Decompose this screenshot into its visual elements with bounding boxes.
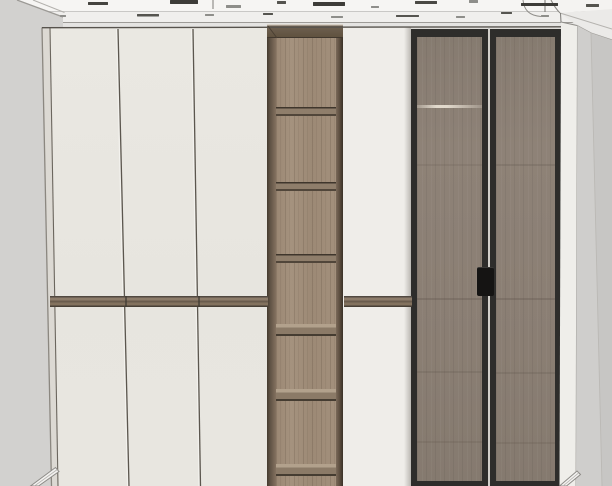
through-glass-shelf-line [496,298,556,300]
through-glass-shelf-line [417,105,482,108]
open-shelf-tower[interactable] [267,24,343,486]
glass-door-right[interactable] [490,28,562,486]
through-glass-shelf-line [417,371,482,373]
wood-shelf [276,464,336,476]
shelf-tower-interior [276,38,336,486]
through-glass-shelf-line [417,441,482,443]
shelf-tower-left-stile [267,38,276,486]
through-glass-shelf-line [417,298,482,300]
wood-shelf [276,254,336,263]
cabinet-right-end-panel[interactable] [560,22,578,486]
cream-door-bank[interactable] [42,28,267,486]
glass-interior-shelf-lines [417,37,482,482]
through-glass-shelf-line [496,442,556,444]
crown-molding-face [0,11,612,22]
right-wall-far [591,33,612,486]
render-viewport[interactable] [0,0,612,486]
wood-shelf [276,389,336,401]
filler-door-edge-shadow [404,27,411,486]
glass-door-handle[interactable] [477,267,495,296]
right-wall-near [576,26,603,486]
through-glass-shelf-line [417,164,482,166]
glass-door-left[interactable] [411,28,488,486]
glass-pane-left [417,37,482,482]
through-glass-shelf-line [496,164,556,166]
wood-shelf [276,324,336,336]
through-glass-shelf-line [496,372,556,374]
wood-shelf [276,107,336,116]
shelf-tower-right-stile [336,38,343,486]
filler-door[interactable] [343,27,411,486]
glass-interior-shelf-lines [496,37,556,482]
shelf-tower-top-rail [267,24,343,38]
wood-shelf [276,182,336,191]
glass-pane-right [496,37,556,482]
baseboard-right [560,471,581,486]
ceiling [0,0,612,11]
